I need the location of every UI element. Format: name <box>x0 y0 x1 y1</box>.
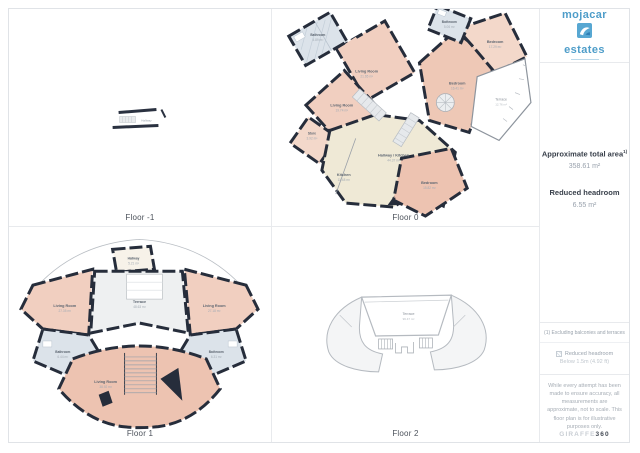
room-label: Bedroom <box>421 181 438 185</box>
brand-word-top: mojacar <box>562 10 607 21</box>
room-label: Living Room <box>53 304 76 308</box>
room-area: 38.92 m² <box>99 385 112 389</box>
room-label: Bathroom <box>209 350 224 354</box>
room-area: 4.89 m² <box>313 38 324 42</box>
staircase <box>379 338 433 353</box>
watermark-bold: 360 <box>596 431 610 438</box>
room-area: 5.21 m² <box>128 261 139 265</box>
room-area: 15.82 m² <box>423 186 436 190</box>
footnote-cell: (1) Excluding balconies and terraces <box>540 323 629 343</box>
quadrant-floor-2: Terrace 96.47 m² Floor 2 <box>272 227 540 442</box>
room-area: 27.18 m² <box>208 309 221 313</box>
room-label: Hallway / Kitchen <box>378 153 410 157</box>
room-label: Living Room <box>94 380 117 384</box>
room-label: Hallway <box>141 118 152 122</box>
room-label: Store <box>308 131 316 135</box>
legend-line1: Reduced headroom <box>565 351 613 357</box>
room-area: 96.47 m² <box>403 317 415 321</box>
room-area: 44.37 m² <box>387 158 400 162</box>
floor-label-1: Floor 1 <box>9 429 271 438</box>
room-label: Bathroom <box>55 350 70 354</box>
headroom-label: Reduced headroom <box>540 188 629 197</box>
room-area: 5.06 m² <box>444 25 455 29</box>
room-area: 19.74 m² <box>336 109 349 113</box>
floorplan-floor-1: Hallway 5.21 m² Terrace 48.63 m² Living … <box>9 227 271 442</box>
room-label: Hallway <box>128 256 140 260</box>
room-area: 11.48 m² <box>338 178 350 182</box>
spiral-staircase <box>436 94 454 112</box>
room-area: 21.65 m² <box>360 75 373 79</box>
room-area: 3.92 m² <box>307 136 318 140</box>
room-area: 6.44 m² <box>57 355 68 359</box>
quadrant-floor-1: Hallway 5.21 m² Terrace 48.63 m² Living … <box>9 227 272 442</box>
room-area: 6.31 m² <box>211 355 222 359</box>
room-area: 17.29 m² <box>489 45 502 49</box>
watermark-light: GIRAFFE <box>559 431 595 438</box>
room-living-room-left <box>21 269 93 335</box>
room-area: 16.41 m² <box>451 87 464 91</box>
room-living-room-right <box>184 269 258 335</box>
giraffe360-watermark: GIRAFFE360 <box>546 431 623 438</box>
floor-label-0: Floor 0 <box>272 213 539 222</box>
area-summary: Approximate total area1) 358.61 m² Reduc… <box>540 63 629 324</box>
headroom-value: 6.55 m² <box>540 202 629 209</box>
basement-stairs <box>113 110 166 128</box>
room-label: Kitchen <box>337 173 352 177</box>
total-area-value: 358.61 m² <box>540 163 629 170</box>
floorplan-page: Hallway Floor -1 <box>0 0 640 453</box>
footnote-text: (1) Excluding balconies and terraces <box>544 330 625 336</box>
floorplan-floor-0: Bathroom 4.89 m² Living Room 21.65 m² Li… <box>272 9 539 226</box>
brand-logo: mojacar estates <box>540 9 629 63</box>
floor-label-minus-1: Floor -1 <box>9 213 271 222</box>
room-label: Living Room <box>203 304 226 308</box>
total-area-label: Approximate total area1) <box>540 149 629 159</box>
room-living-room-bottom <box>59 346 220 428</box>
room-area: 48.63 m² <box>133 305 146 309</box>
room-label: Bedroom <box>449 82 466 86</box>
brand-word-bottom: estates <box>564 45 605 56</box>
brand-mark-icon <box>577 23 592 43</box>
brand-tagline <box>571 59 599 60</box>
reduced-headroom-swatch-icon <box>556 351 562 357</box>
total-area-footnote-ref: 1) <box>623 149 627 154</box>
sidebar: mojacar estates Approximate total area1)… <box>540 9 629 442</box>
room-area: 27.35 m² <box>59 309 72 313</box>
room-area: 12.76 m² <box>495 103 507 107</box>
quadrant-floor-0: Bathroom 4.89 m² Living Room 21.65 m² Li… <box>272 9 540 227</box>
quadrant-floor-minus-1: Hallway Floor -1 <box>9 9 272 227</box>
plan-frame: Hallway Floor -1 <box>8 8 630 443</box>
total-area-label-text: Approximate total area <box>542 149 623 158</box>
room-label: Bathroom <box>442 20 457 24</box>
legend-line2: Below 1.5m (4.92 ft) <box>560 359 609 365</box>
floorplan-floor-minus-1: Hallway <box>9 9 271 226</box>
room-label: Bedroom <box>487 40 504 44</box>
room-label: Living Room <box>330 104 353 108</box>
floor-label-2: Floor 2 <box>272 429 539 438</box>
room-label: Bathroom <box>310 33 325 37</box>
room-label: Terrace <box>495 98 507 102</box>
room-label: Terrace <box>133 300 146 304</box>
room-label: Living Room <box>355 70 378 74</box>
disclaimer-cell: While every attempt has been made to ens… <box>540 375 629 443</box>
roof-terrace <box>327 295 486 372</box>
floorplan-floor-2: Terrace 96.47 m² <box>272 227 539 442</box>
legend: Reduced headroom Below 1.5m (4.92 ft) <box>540 343 629 374</box>
disclaimer-text: While every attempt has been made to ens… <box>546 382 623 432</box>
room-label: Terrace <box>403 312 415 316</box>
